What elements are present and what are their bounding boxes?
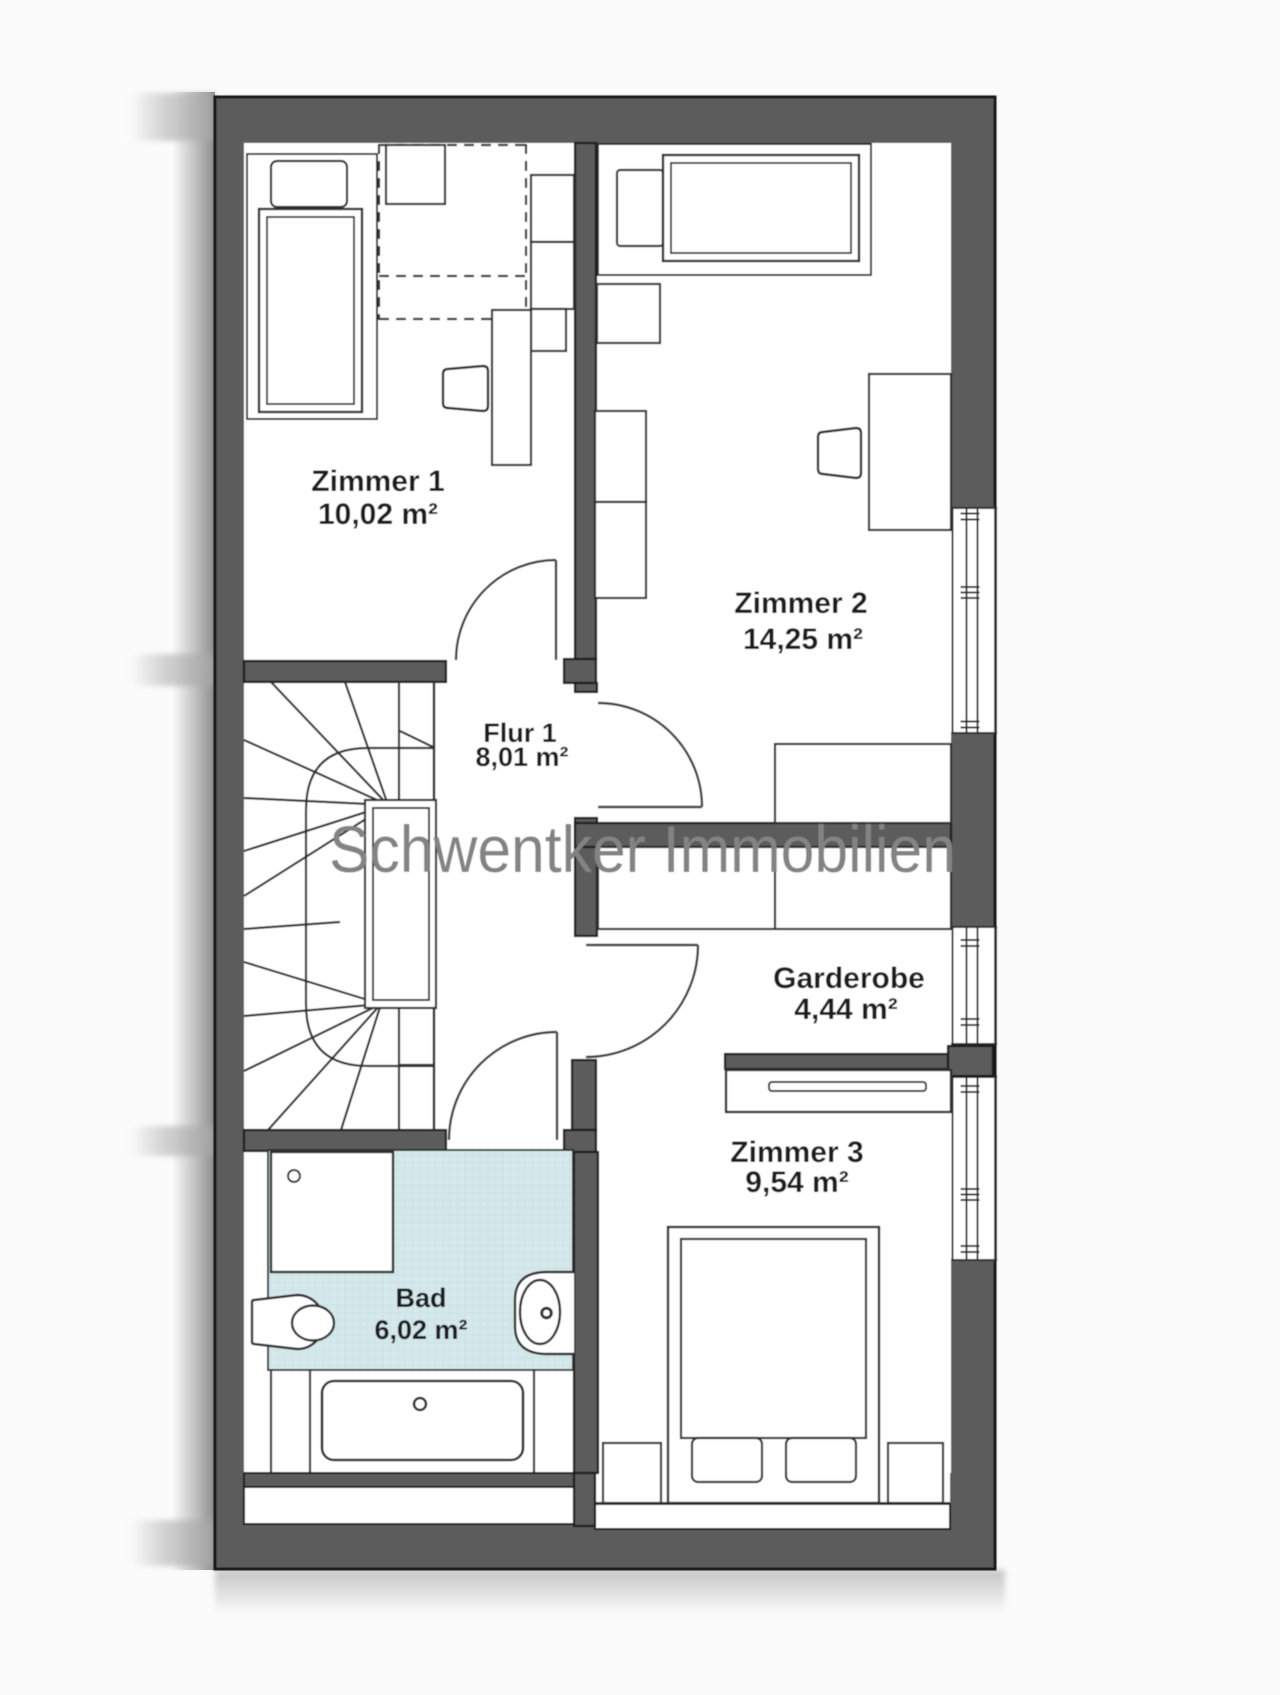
svg-text:Zimmer 3: Zimmer 3 <box>730 1136 863 1169</box>
svg-text:8,01 m²: 8,01 m² <box>475 742 568 772</box>
svg-text:9,54 m²: 9,54 m² <box>745 1166 848 1199</box>
svg-text:14,25 m²: 14,25 m² <box>743 623 863 656</box>
svg-text:Garderobe: Garderobe <box>773 962 925 995</box>
svg-text:10,02 m²: 10,02 m² <box>318 498 438 531</box>
svg-text:Bad: Bad <box>395 1283 446 1313</box>
svg-text:Zimmer 1: Zimmer 1 <box>311 465 444 498</box>
svg-text:Schwentker Immobilien: Schwentker Immobilien <box>329 812 956 886</box>
svg-text:4,44 m²: 4,44 m² <box>794 993 897 1026</box>
svg-text:Zimmer 2: Zimmer 2 <box>734 587 867 620</box>
svg-text:6,02 m²: 6,02 m² <box>374 1315 467 1345</box>
